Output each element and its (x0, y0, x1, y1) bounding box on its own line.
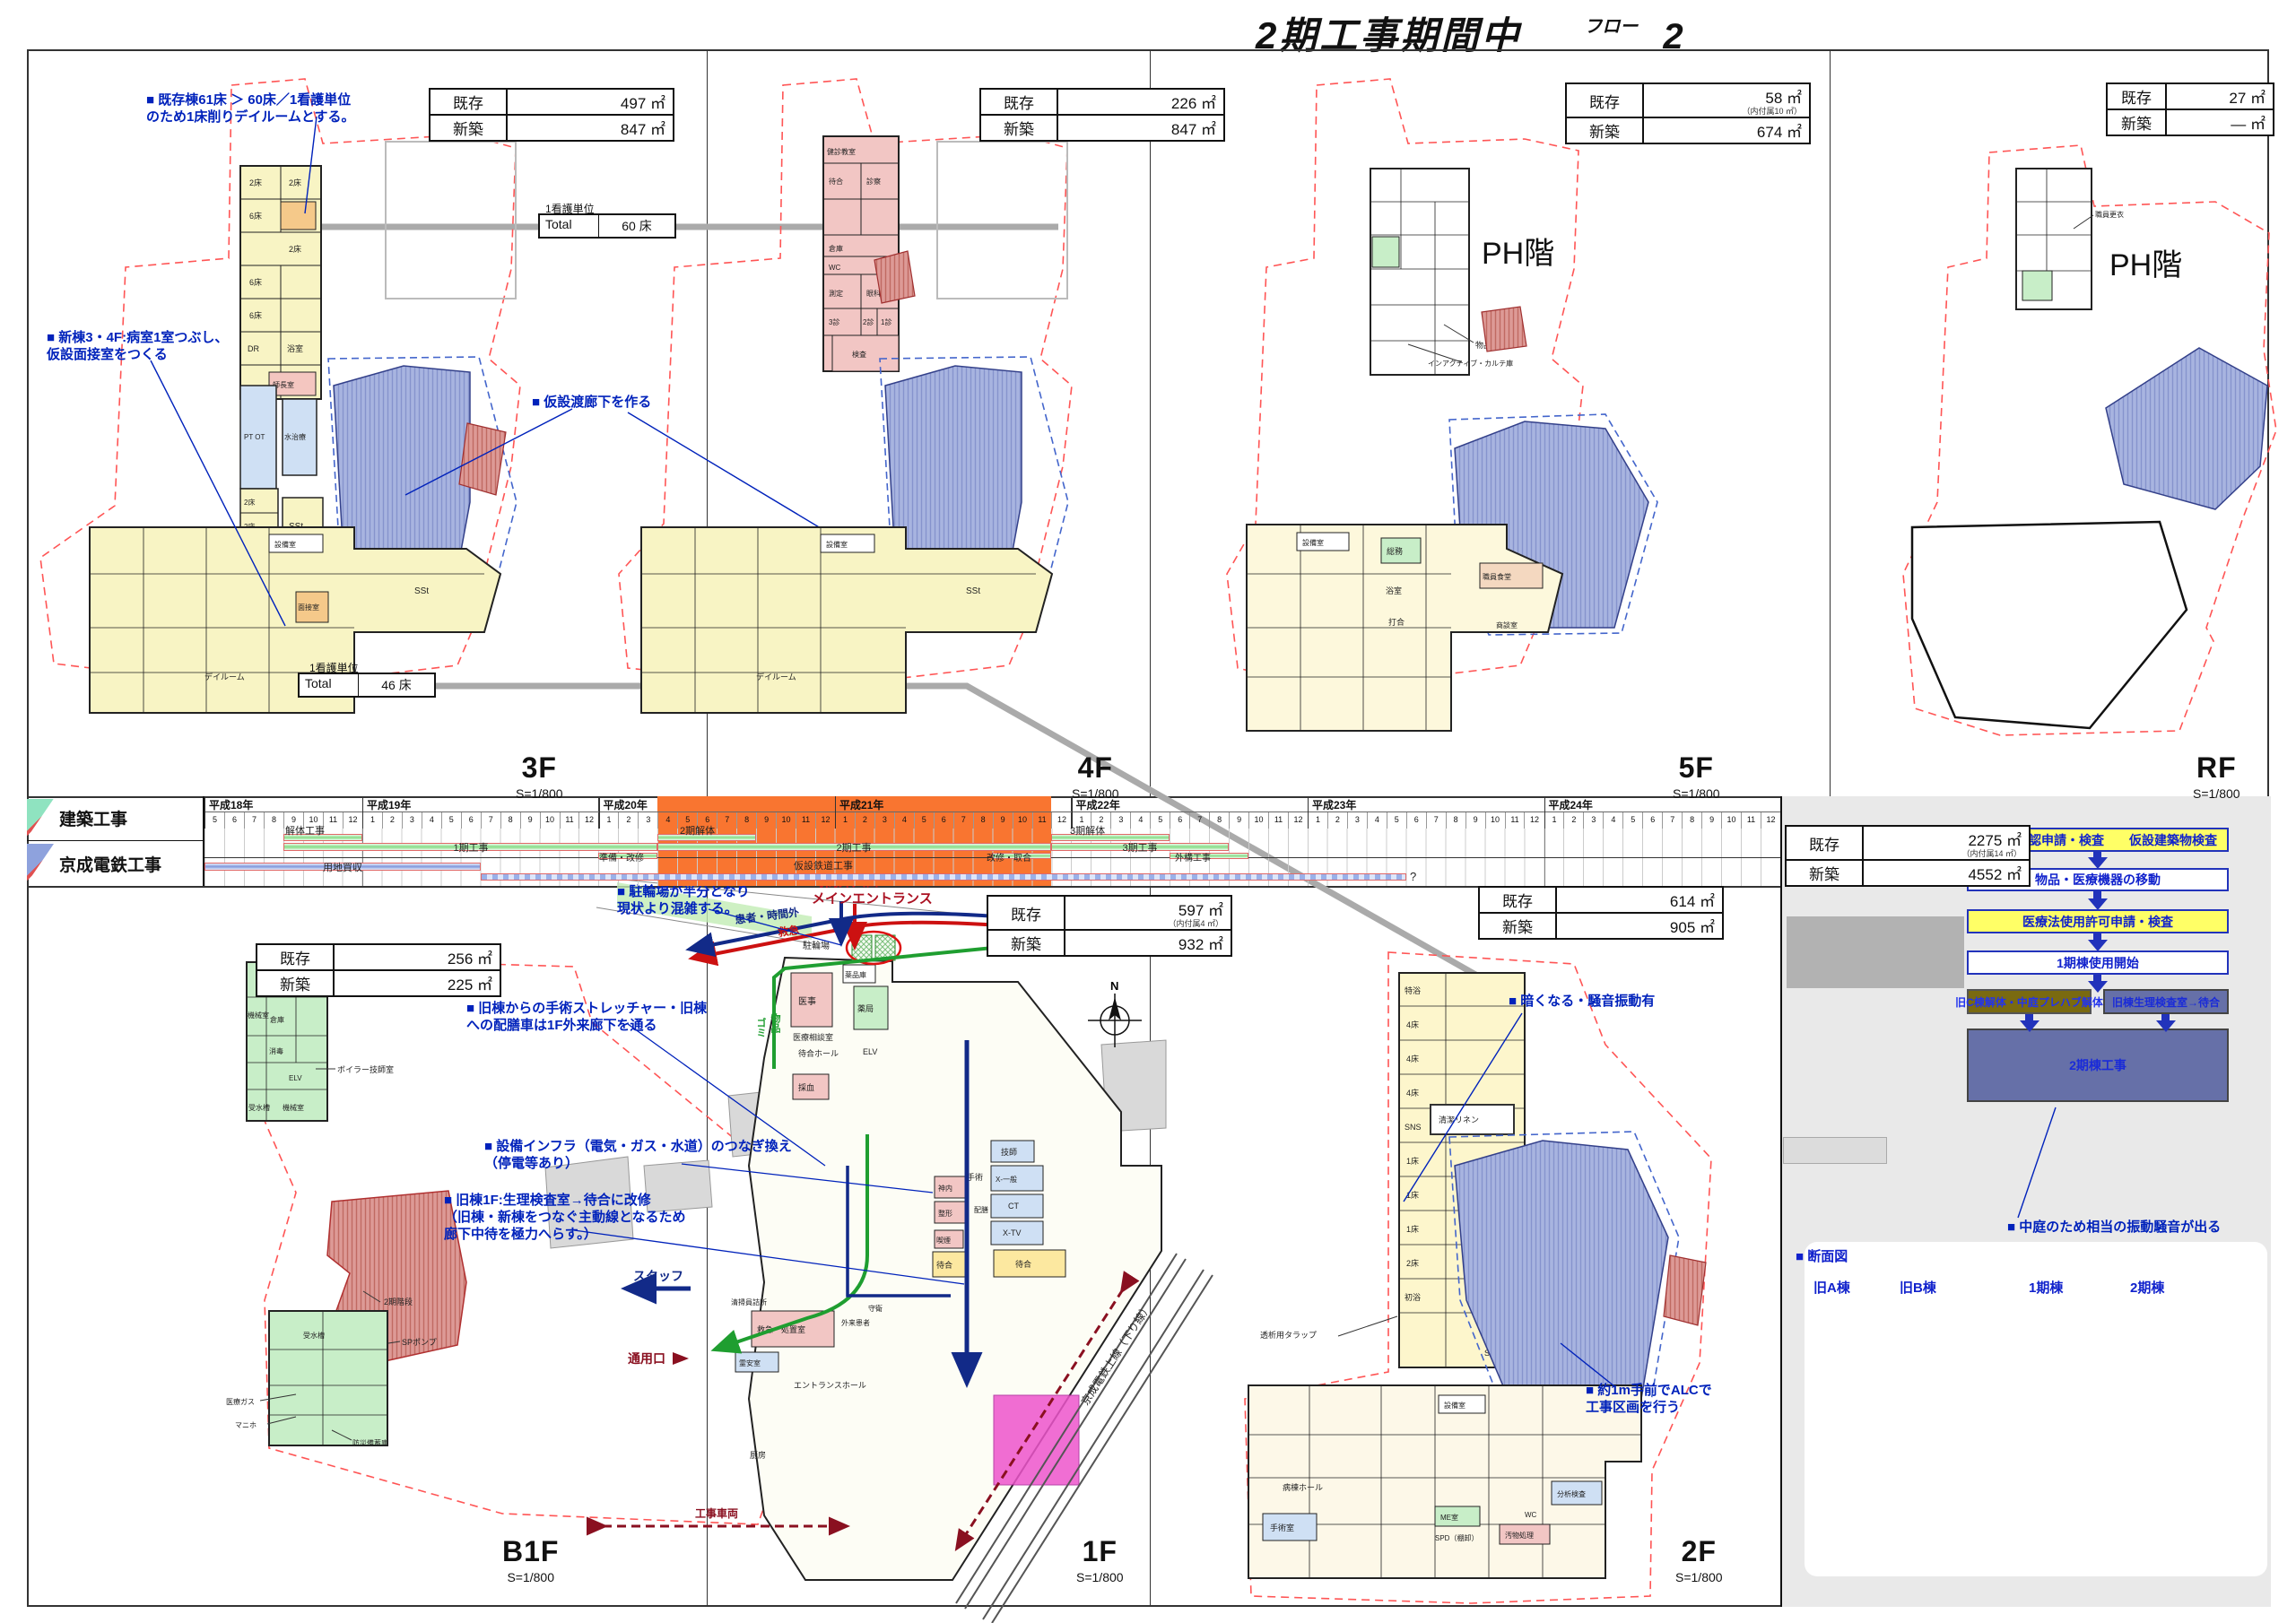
gantt-month: 9 (757, 812, 777, 829)
gantt-month: 2 (856, 812, 875, 829)
gantt-month: 5 (205, 812, 225, 829)
gantt-month: 7 (245, 812, 265, 829)
plan-4f: 健診教室 待合 診察 倉庫 WC 測定 眼科 3診 2診 1診 検査 設備室 S… (619, 79, 1072, 713)
gantt-month: 4 (1131, 812, 1151, 829)
area-exist-value: 497 ㎡ (507, 89, 674, 115)
room-label: SPD（棚卸） (1435, 1533, 1478, 1542)
room-label: SNS (1405, 1123, 1422, 1132)
section-building-a: 旧A棟 (1813, 1278, 1850, 1297)
gantt-month: 5 (1387, 812, 1407, 829)
room-label: X-TV (1003, 1228, 1022, 1237)
gantt-month: 3 (403, 812, 422, 829)
route-label-staff: スタッフ (633, 1269, 683, 1283)
room-label: 配膳 (974, 1205, 988, 1214)
gantt-year: 平成19年123456789101112 (362, 796, 599, 829)
room-label: 清潔リネン (1439, 1115, 1479, 1124)
room-label: 待合 (936, 1260, 952, 1270)
section-building-2: 2期棟 (2130, 1278, 2164, 1297)
gantt-month: 7 (1427, 812, 1447, 829)
flow-arrowhead (2156, 1020, 2176, 1032)
gantt-month: 5 (442, 812, 462, 829)
bar-label: 2期工事 (836, 840, 871, 855)
room-label: 2床 (289, 178, 301, 187)
gantt-month: 8 (1210, 812, 1230, 829)
gantt-month: 11 (1742, 812, 1761, 829)
room-label: ELV (863, 1047, 877, 1056)
bar-label-unknown: ? (1410, 870, 1416, 883)
room-label: 水治療 (284, 432, 306, 441)
gantt-month: 8 (265, 812, 284, 829)
gantt-year: 平成21年123456789101112 (835, 796, 1072, 829)
room-label: 手術 (967, 1172, 983, 1182)
flow-arrowhead (2088, 898, 2108, 910)
section-title: ■ 断面図 (1796, 1246, 1848, 1265)
gantt-month: 9 (521, 812, 541, 829)
area-table-4f: 既存226 ㎡ 新築847 ㎡ (979, 88, 1225, 142)
room-label: 2診 (863, 317, 874, 326)
gray-block (1787, 916, 1964, 988)
bar-label: 外構工事 (1175, 850, 1211, 864)
room-label: 薬局 (857, 1003, 874, 1013)
room-label: 設備室 (274, 540, 296, 549)
gantt-row-construction: 建築工事 (27, 796, 203, 841)
gantt-year: 平成22年123456789101112 (1072, 796, 1309, 829)
room-label: 機械室 (283, 1103, 304, 1112)
north-compass: N (1088, 979, 1142, 1047)
legend-triangle-railway (27, 844, 54, 883)
area-table-3f: 既存497 ㎡ 新築847 ㎡ (429, 88, 674, 142)
room-label: SSt (966, 586, 980, 596)
section-building-1: 1期棟 (2029, 1278, 2063, 1297)
room-label: 厨房 (750, 1450, 766, 1460)
gantt-month: 6 (1170, 812, 1190, 829)
gantt-month: 1 (1545, 812, 1565, 829)
room-label: 3診 (829, 317, 839, 326)
gantt-month: 1 (600, 812, 620, 829)
gantt-month: 12 (1052, 812, 1071, 829)
gantt-month: 3 (639, 812, 658, 829)
room-label: 面接室 (298, 603, 319, 612)
gantt-month: 1 (836, 812, 856, 829)
annotation-beds: ■ 既存棟61床 ＞ 60床／1看護単位 のため1床削りデイルームとする。 (146, 92, 354, 126)
gantt-month: 3 (1584, 812, 1604, 829)
room-label: ボイラー技師室 (337, 1064, 394, 1074)
annotation-bike: ■ 駐輪場が半分となり 現状より混雑する。 (617, 884, 750, 918)
room-label: ME室 (1440, 1513, 1458, 1522)
gantt-month: 3 (1348, 812, 1368, 829)
area-note: （内付属14 ㎡） (1871, 850, 2022, 858)
route-label-trash: ゴミ (755, 1017, 766, 1037)
area-table-total: 既存2275 ㎡（内付属14 ㎡） 新築4552 ㎡ (1785, 825, 2031, 887)
room-label: 倉庫 (270, 1015, 284, 1024)
room-label: DR (248, 344, 259, 353)
room-label: 6床 (249, 277, 262, 287)
gantt-month: 12 (1525, 812, 1544, 829)
room-label: 神内 (938, 1184, 952, 1193)
gantt-month: 12 (579, 812, 598, 829)
gantt-year-header: 平成18年56789101112 平成19年123456789101112 平成… (204, 796, 1780, 829)
bar-label: 1期工事 (453, 840, 488, 855)
room-label: 2床 (244, 498, 255, 507)
room-label: 2床 (249, 178, 262, 187)
room-label: 分析検査 (1557, 1489, 1586, 1498)
floor-label-1f: 1FS=1/800 (1076, 1535, 1124, 1584)
drawing-sheet: 2期工事期間中フロー2 (0, 0, 2296, 1623)
bar-label: 解体工事 (285, 823, 325, 838)
floor-label-3f: 3FS=1/800 (516, 751, 563, 801)
bar-label: 2期解体 (680, 823, 715, 838)
room-label: ELV (289, 1074, 302, 1082)
gantt-month: 4 (1368, 812, 1387, 829)
bar-label: 3期解体 (1070, 823, 1105, 838)
room-label: X-一般 (996, 1175, 1017, 1184)
room-label: 初浴 (1405, 1292, 1421, 1302)
room-label: 1床 (1406, 1224, 1419, 1234)
room-label: WC (1525, 1511, 1537, 1519)
room-label: SPポンプ (402, 1338, 437, 1347)
room-label: 透析用タラップ (1260, 1330, 1317, 1340)
room-label: 2床 (1406, 1258, 1419, 1268)
gantt-month: 2 (383, 812, 403, 829)
room-label: 1床 (1406, 1156, 1419, 1166)
room-label: 防災備蓄庫 (352, 1438, 388, 1447)
area-table-rf: 既存27 ㎡ 新築― ㎡ (2106, 82, 2274, 136)
room-label: 4床 (1406, 1088, 1419, 1098)
flow-step-phase2-construction: 2期棟工事 (1967, 1028, 2229, 1102)
gantt-month: 1 (1309, 812, 1328, 829)
annotation-alc: ■ 約1m手前でALCで 工事区画を行う (1586, 1383, 1712, 1417)
room-label: CT (1008, 1202, 1019, 1211)
gantt-month: 4 (1604, 812, 1623, 829)
area-new-label: 新築 (430, 115, 507, 141)
annotation-renovation: ■ 旧棟1F:生理検査室→待合に改修 （旧棟・新棟をつなぐ主動線となるため 廊下… (444, 1193, 686, 1243)
area-table-5f: 既存58 ㎡（内付属10 ㎡） 新築674 ㎡ (1565, 82, 1811, 144)
flow-arrowhead (2088, 857, 2108, 869)
gantt-month: 12 (1761, 812, 1780, 829)
annotation-temp-room: ■ 新棟3・4F:病室1室つぶし、 仮設面接室をつくる (47, 330, 228, 364)
room-label: 外来患者 (841, 1318, 870, 1327)
gantt-month: 10 (1722, 812, 1742, 829)
gantt-month: 11 (1506, 812, 1526, 829)
room-label: 清掃員詰所 (731, 1298, 767, 1306)
room-label: デイルーム (204, 672, 245, 681)
room-label: 4床 (1406, 1020, 1419, 1029)
section-building-b: 旧B棟 (1900, 1278, 1936, 1297)
room-label: PT OT (244, 433, 265, 441)
bar-temp-railway (481, 873, 1406, 881)
gantt-month: 4 (658, 812, 678, 829)
gantt-month: 7 (717, 812, 737, 829)
bar-label: 3期工事 (1122, 840, 1157, 855)
gantt-month: 6 (225, 812, 245, 829)
gantt-month: 12 (1289, 812, 1308, 829)
gate-label: 通用口 (628, 1351, 665, 1366)
bar-label: 改修・取合 (987, 850, 1031, 864)
gantt-month: 5 (1151, 812, 1170, 829)
gantt-month: 9 (1466, 812, 1486, 829)
room-label: 設備室 (826, 540, 848, 549)
flow-step-phase1-use: 1期棟使用開始 (1967, 950, 2229, 975)
bar-label: 準備・改修 (599, 850, 644, 864)
area-table-b1f: 既存256 ㎡ 新築225 ㎡ (256, 943, 501, 997)
gantt-month: 7 (1663, 812, 1683, 829)
gantt-month: 11 (324, 812, 344, 829)
area-table-1f: 既存597 ㎡（内付属4 ㎡） 新築932 ㎡ (987, 895, 1232, 957)
room-label: 霊安室 (739, 1358, 761, 1367)
gantt-month: 12 (816, 812, 835, 829)
room-label: 待合ホール (798, 1048, 839, 1058)
gantt-month: 4 (422, 812, 442, 829)
gantt-month: 12 (344, 812, 362, 829)
gantt-month: 9 (1230, 812, 1249, 829)
annotation-stretcher: ■ 旧棟からの手術ストレッチャー・旧棟 への配膳車は1F外来廊下を通る (466, 1001, 707, 1035)
gantt-month: 3 (875, 812, 895, 829)
gantt-month: 6 (935, 812, 954, 829)
gantt-month: 5 (1623, 812, 1643, 829)
room-label: インアクティブ・カルテ庫 (1428, 359, 1513, 368)
gantt-month: 7 (954, 812, 974, 829)
room-label: 4床 (1406, 1054, 1419, 1063)
room-label: WC (829, 264, 841, 272)
gantt-month: 11 (1033, 812, 1053, 829)
gantt-bar-zone: 解体工事 1期工事 準備・改修 2期解体 2期工事 改修・取合 3期解体 3期工… (204, 829, 1780, 886)
room-label: 待合 (829, 177, 843, 186)
room-label: 手術室 (1270, 1523, 1294, 1532)
floor-label-4f: 4FS=1/800 (1072, 751, 1119, 801)
bar-label: 用地買収 (323, 860, 362, 874)
room-label: 1診 (881, 317, 891, 326)
room-label: 採血 (798, 1082, 814, 1092)
room-label: 浴室 (287, 343, 303, 353)
room-label: 測定 (829, 289, 843, 298)
gantt-month: 8 (737, 812, 757, 829)
room-label: 診察 (866, 177, 881, 186)
gantt-month: 11 (561, 812, 580, 829)
room-label: 健診教室 (827, 147, 856, 156)
gantt-month: 8 (501, 812, 521, 829)
annotation-temp-corridor: ■ 仮設渡廊下を作る (532, 395, 651, 412)
gantt-month: 5 (915, 812, 935, 829)
flow-arrowhead (2088, 981, 2108, 993)
gantt-month: 10 (1486, 812, 1506, 829)
room-label: 駐輪場 (803, 940, 830, 951)
floor-label-5f: 5FS=1/800 (1673, 751, 1720, 801)
gantt-year: 平成18年56789101112 (204, 796, 362, 829)
annotation-courtyard-noise: ■ 中庭のため相当の振動騒音が出る (2007, 1219, 2221, 1237)
plan-1f: 医事 薬局 薬品庫 医療相談室 待合ホール ELV 採血 技師 手術 X-一般 … (545, 877, 1213, 1623)
room-label: 受水槽 (248, 1103, 270, 1112)
flow-step-medical-permit: 医療法使用許可申請・検査 (1967, 909, 2229, 933)
gantt-month: 6 (462, 812, 482, 829)
plan-2f: 特浴 4床 4床 4床 SNS 1床 1床 1床 2床 初浴 ICU 6床 SS… (1245, 952, 1711, 1603)
gantt-month: 11 (1269, 812, 1289, 829)
gantt-month: 6 (1643, 812, 1663, 829)
room-label: 待合 (1015, 1259, 1031, 1269)
floor-label-rf: RFS=1/800 (2193, 751, 2240, 801)
area-exist-label: 既存 (430, 89, 507, 115)
room-label: デイルーム (756, 672, 796, 681)
room-label: 医療相談室 (793, 1032, 833, 1042)
room-label: 技師 (1001, 1147, 1017, 1157)
room-label: 2床 (289, 244, 301, 254)
route-label-goods: 物品 (770, 1012, 781, 1034)
plan-5f: 物品庫 インアクティブ・カルテ庫 設備室 総務 職員食堂 浴室 打合 商談室 (1227, 79, 1657, 731)
gantt-year: 平成20年123456789101112 (599, 796, 836, 829)
room-label: 汚物処理 (1505, 1531, 1534, 1540)
room-label: 医療ガス (226, 1397, 255, 1406)
floor-label-b1f: B1FS=1/800 (502, 1535, 559, 1584)
room-label: 眼科 (866, 289, 881, 298)
annotation-dark-noise: ■ 暗くなる・騒音振動有 (1509, 994, 1655, 1011)
gantt-row-railway: 京成電鉄工事 (27, 841, 203, 886)
room-label: 医事 (798, 995, 816, 1007)
nurse-unit-table-bottom: Total46 床 (298, 673, 436, 698)
gantt-grid: 平成18年56789101112 平成19年123456789101112 平成… (204, 796, 1780, 886)
gantt-year: 平成23年123456789101112 (1308, 796, 1544, 829)
room-label: 職員更衣 (2095, 210, 2124, 219)
room-label: 商談室 (1496, 621, 1518, 629)
plan-rf: 職員更衣 (1903, 145, 2276, 735)
room-label: 消毒 (269, 1046, 283, 1055)
gantt-row-labels: 建築工事 京成電鉄工事 (27, 796, 204, 886)
gantt-month: 8 (974, 812, 994, 829)
room-label: 総務 (1387, 546, 1403, 556)
gantt-month: 6 (1407, 812, 1427, 829)
room-label: 2期階段 (384, 1297, 413, 1306)
ph-label-rf: PH階 (2109, 240, 2182, 284)
flow-arrowhead (2088, 940, 2108, 951)
gantt-month: 7 (1190, 812, 1210, 829)
gantt-month: 9 (1702, 812, 1722, 829)
gantt-month: 7 (482, 812, 501, 829)
room-label: 6床 (249, 310, 262, 320)
gantt-month: 11 (796, 812, 816, 829)
room-label: 病棟ホール (1283, 1482, 1323, 1492)
gantt-year: 平成24年123456789101112 (1544, 796, 1781, 829)
room-label: 設備室 (1444, 1401, 1465, 1410)
room-label: マニホ (235, 1421, 257, 1429)
room-label: SSt (414, 586, 429, 596)
bar-label: 仮設鉄道工事 (794, 858, 853, 872)
gantt-month: 4 (895, 812, 915, 829)
room-label: 整形 (938, 1209, 952, 1218)
gantt-month: 8 (1447, 812, 1466, 829)
gantt-month: 2 (1564, 812, 1584, 829)
gantt-month: 10 (1013, 812, 1033, 829)
flow-step-physio-to-waiting: 旧棟生理検査室→待合 (2103, 989, 2229, 1014)
vehicle-route-label: 工事車両 (695, 1506, 738, 1520)
area-table-2f: 既存614 ㎡ 新築905 ㎡ (1478, 886, 1724, 940)
gantt-month: 1 (363, 812, 383, 829)
room-label: 打合 (1388, 617, 1405, 627)
room-label: 守衛 (868, 1304, 883, 1313)
gantt-month: 8 (1683, 812, 1702, 829)
room-label: 検査 (852, 350, 866, 359)
room-label: 6床 (249, 211, 262, 221)
room-label: 浴室 (1386, 586, 1402, 595)
gantt-month: 10 (1249, 812, 1269, 829)
area-note: （内付属10 ㎡） (1651, 108, 1802, 116)
gantt-month: 9 (994, 812, 1013, 829)
gantt-month: 10 (541, 812, 561, 829)
legend-triangle-construction (27, 799, 54, 838)
flow-annotation-leader (2018, 1107, 2056, 1218)
nurse-unit-table-top: Total60 床 (538, 213, 676, 239)
room-label: 特浴 (1405, 985, 1421, 995)
gantt-month: 2 (619, 812, 639, 829)
gray-block-small (1783, 1137, 1887, 1164)
gantt-month: 10 (777, 812, 796, 829)
gantt-month: 3 (1111, 812, 1131, 829)
ph-label-5f: PH階 (1482, 229, 1554, 273)
area-note: （内付属4 ㎡） (1073, 920, 1223, 928)
room-label: 喫煙 (936, 1236, 951, 1245)
room-label: 倉庫 (829, 244, 843, 253)
flow-step-demolish-c: 旧C棟解体・中庭プレハブ解体 (1967, 989, 2092, 1014)
flow-arrowhead (2020, 1020, 2039, 1032)
gantt-month: 2 (1328, 812, 1348, 829)
room-label: エントランスホール (794, 1381, 866, 1390)
room-label: 設備室 (1302, 538, 1324, 547)
compass-n: N (1110, 979, 1118, 993)
area-new-value: 847 ㎡ (507, 115, 674, 141)
room-label: 薬品庫 (845, 970, 866, 979)
floor-label-2f: 2FS=1/800 (1675, 1535, 1723, 1584)
room-label: 受水槽 (303, 1331, 325, 1340)
room-label: 機械室 (248, 1011, 269, 1020)
room-label: 職員食堂 (1483, 572, 1511, 581)
annotation-infra: ■ 設備インフラ（電気・ガス・水道）のつなぎ換え （停電等あり） (484, 1139, 792, 1173)
